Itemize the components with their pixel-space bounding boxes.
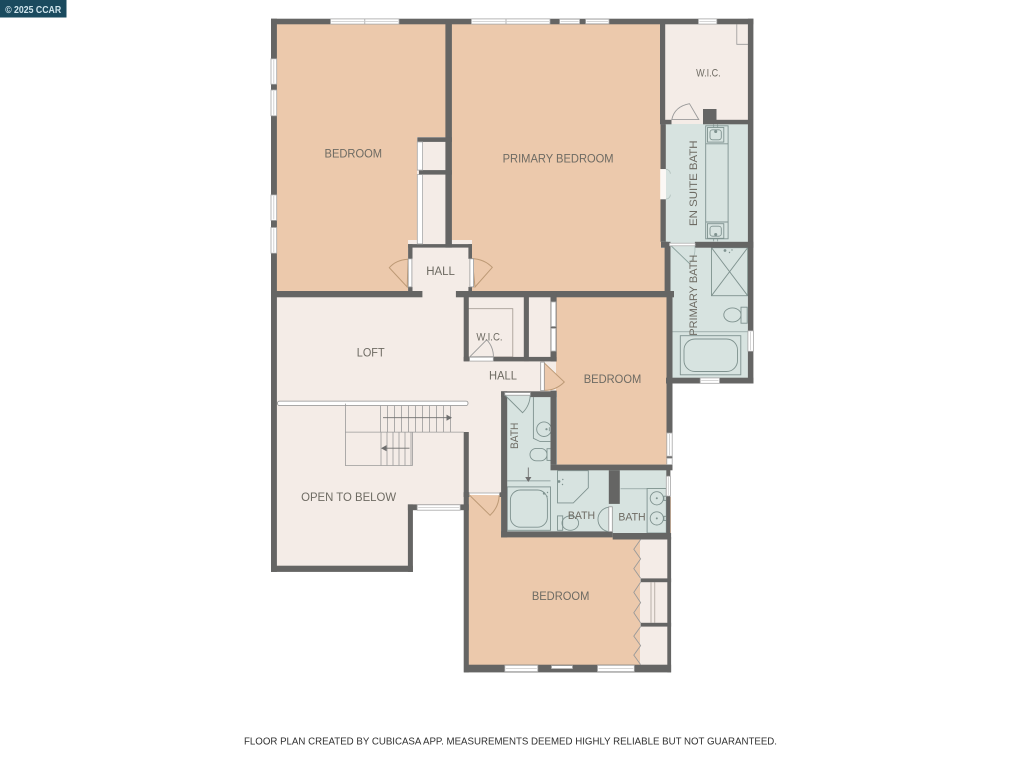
svg-text:OPEN TO BELOW: OPEN TO BELOW [301, 490, 396, 504]
svg-text:HALL: HALL [426, 264, 455, 278]
svg-text:EN SUITE BATH: EN SUITE BATH [688, 140, 700, 226]
svg-text:HALL: HALL [489, 368, 517, 382]
svg-text:LOFT: LOFT [357, 346, 385, 360]
svg-text:PRIMARY BEDROOM: PRIMARY BEDROOM [503, 152, 614, 166]
svg-text:PRIMARY BATH: PRIMARY BATH [688, 255, 700, 336]
svg-text:BEDROOM: BEDROOM [532, 589, 590, 603]
svg-text:© 2025 CCAR: © 2025 CCAR [5, 5, 62, 16]
svg-text:W.I.C.: W.I.C. [476, 332, 502, 344]
svg-text:BATH: BATH [509, 423, 521, 450]
svg-text:W.I.C.: W.I.C. [696, 67, 721, 79]
svg-text:BATH: BATH [568, 510, 595, 522]
svg-text:BEDROOM: BEDROOM [325, 147, 383, 161]
svg-text:BEDROOM: BEDROOM [584, 372, 642, 386]
svg-text:BATH: BATH [618, 511, 645, 523]
svg-text:FLOOR PLAN CREATED BY CUBICASA: FLOOR PLAN CREATED BY CUBICASA APP. MEAS… [244, 736, 777, 747]
